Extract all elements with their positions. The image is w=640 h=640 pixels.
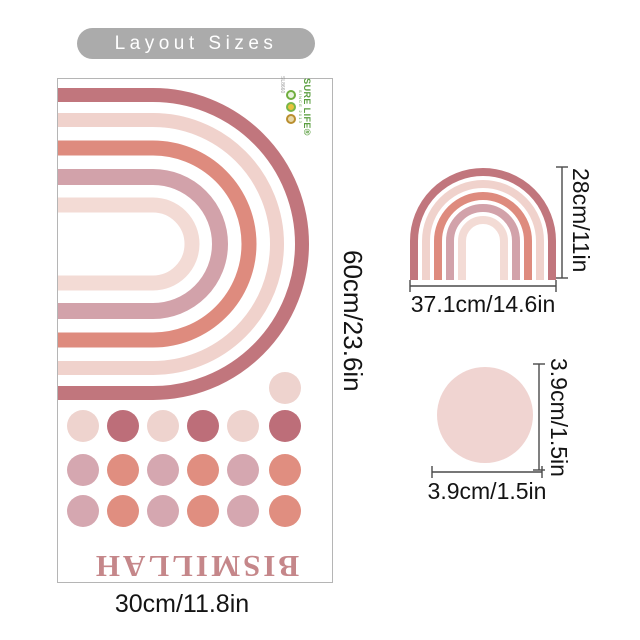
sheet-height-label: 60cm/23.6in [337,250,368,392]
brand-logo: SURE LIFE® SINCE 2013 SL8660 [271,76,319,138]
sticker-dot [227,495,259,527]
sticker-dot [269,495,301,527]
sku-code: SL8660 [279,76,284,93]
rainbow-arc [58,95,302,393]
circle-width-label: 3.9cm/1.5in [402,478,572,505]
quality-badge-icon [286,102,296,112]
certification-badges [286,90,296,124]
circle-height-dimension-line [532,362,546,472]
sticker-dot [269,410,301,442]
gold-badge-icon [286,114,296,124]
sticker-dot [187,495,219,527]
sticker-dot [269,372,301,404]
sticker-dot [147,495,179,527]
registered-icon: ® [302,129,312,136]
brand-since: SINCE 2013 [298,90,302,124]
bismillah-word-decal: BISMILLAH [74,547,318,585]
rainbow-arc [58,205,192,283]
rainbow-width-label: 37.1cm/14.6in [398,291,568,318]
circle-width-dimension-line [430,465,544,479]
sticker-dot [227,454,259,486]
sticker-dot [187,454,219,486]
eco-badge-icon [286,90,296,100]
sticker-sheet: BISMILLAH SURE LIFE® SINCE 2013 SL8660 [57,78,333,583]
rainbow-arc [462,220,504,280]
circle-decal [437,367,533,463]
rainbow-height-label: 28cm/11in [567,168,594,272]
sticker-dot [67,495,99,527]
sticker-dot [67,454,99,486]
circle-height-label: 3.9cm/1.5in [545,358,572,477]
sticker-dot [187,410,219,442]
sheet-width-label: 30cm/11.8in [47,590,317,619]
brand-name: SURE LIFE® [302,78,311,136]
sticker-dot [147,454,179,486]
sticker-dot [67,410,99,442]
sticker-dot [107,454,139,486]
sticker-dot [227,410,259,442]
small-rainbow-decal [410,164,556,281]
layout-sizes-banner: Layout Sizes [77,28,315,59]
sticker-dot [147,410,179,442]
sticker-dot [107,495,139,527]
sticker-dot [107,410,139,442]
sticker-dot [269,454,301,486]
banner-label: Layout Sizes [115,33,278,55]
